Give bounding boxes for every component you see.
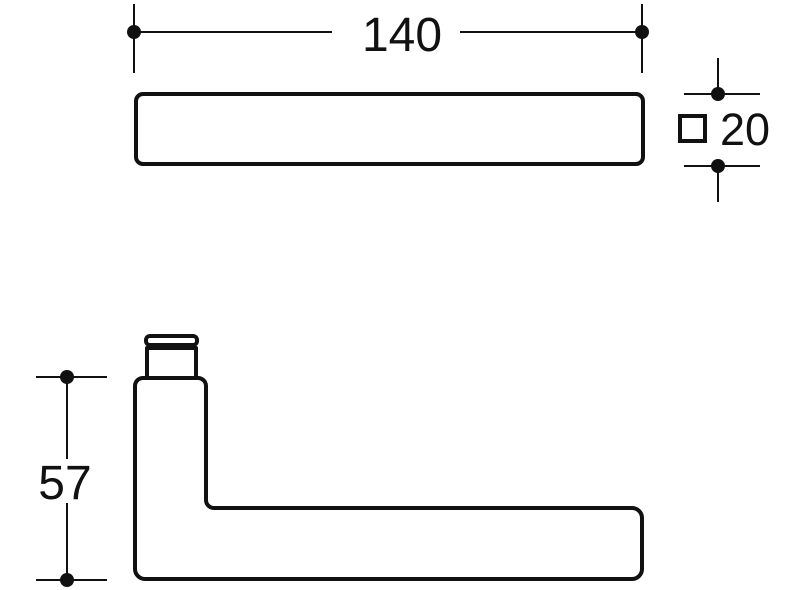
dimension-endpoint-dot	[60, 573, 74, 587]
dimension-endpoint-dot	[635, 25, 649, 39]
dimension-endpoint-dot	[711, 87, 725, 101]
dimension-endpoint-dot	[60, 370, 74, 384]
side-view	[135, 336, 642, 579]
handle-side-view-outline	[135, 378, 642, 579]
dimension-length: 140	[127, 4, 649, 73]
top-view	[136, 94, 643, 164]
dimension-label-square-section: 20	[720, 104, 770, 155]
square-section-icon	[680, 116, 705, 141]
handle-top-view-outline	[136, 94, 643, 164]
dimension-endpoint-dot	[127, 25, 141, 39]
dimension-label-length: 140	[362, 9, 442, 62]
dimension-label-height: 57	[38, 457, 91, 510]
dimension-endpoint-dot	[711, 159, 725, 173]
dimension-square-section: 20	[680, 58, 770, 202]
technical-drawing: 140 20	[0, 0, 804, 590]
drawing-canvas: 140 20	[0, 0, 804, 590]
dimension-height: 57	[36, 370, 107, 587]
spindle-cap	[146, 336, 197, 345]
